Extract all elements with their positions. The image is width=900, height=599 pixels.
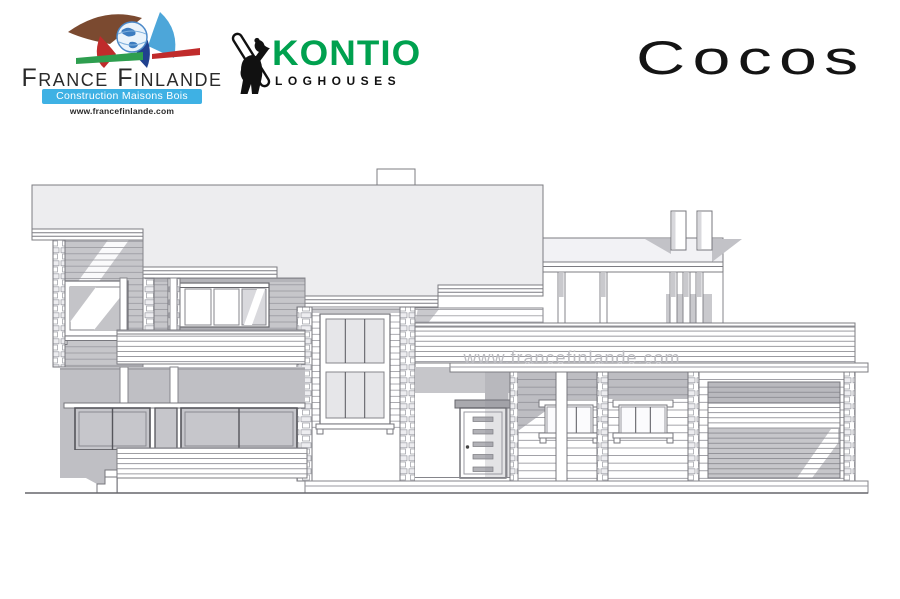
garage-wing: [688, 371, 855, 481]
balcony-post: [120, 278, 127, 332]
page: France Finlande Construction Maisons Boi…: [0, 0, 900, 599]
house-elevation-drawing: www.francefinlande.com: [0, 150, 900, 599]
balcony-sliding-door: [179, 283, 269, 327]
balcony-railing: [117, 330, 305, 364]
france-finlande-url: www.francefinlande.com: [18, 106, 226, 116]
right-wing-wall: [518, 367, 688, 493]
log-corner-post: [53, 240, 65, 367]
right-wing-window: [613, 400, 673, 443]
door-handle: [466, 445, 469, 448]
kontio-logo: KONTIO LOGHOUSES: [228, 26, 403, 102]
kontio-name: KONTIO: [272, 34, 421, 74]
terrace-columns: [558, 272, 723, 323]
center-window-bay: [297, 307, 415, 481]
garage-door: [708, 382, 840, 478]
balcony-section: [120, 278, 305, 332]
entrance-porch: [415, 367, 522, 481]
model-title: Cocos: [636, 30, 865, 85]
balcony-post: [170, 278, 177, 332]
ground: [25, 481, 868, 493]
porch-column: [556, 370, 567, 481]
center-window: [316, 314, 394, 434]
left-ground-floor: [60, 367, 307, 493]
ground-floor-windows: [75, 408, 297, 450]
france-finlande-emblem-icon: [48, 6, 208, 68]
right-wing-window: [539, 400, 599, 443]
main-chimney: [377, 169, 415, 185]
kontio-subtitle: LOGHOUSES: [275, 74, 401, 88]
france-finlande-tagline-banner: Construction Maisons Bois: [42, 89, 202, 104]
france-finlande-logo: France Finlande Construction Maisons Boi…: [18, 6, 226, 122]
watermark-text: www.francefinlande.com: [462, 348, 680, 368]
terrace-roof: [543, 211, 742, 272]
